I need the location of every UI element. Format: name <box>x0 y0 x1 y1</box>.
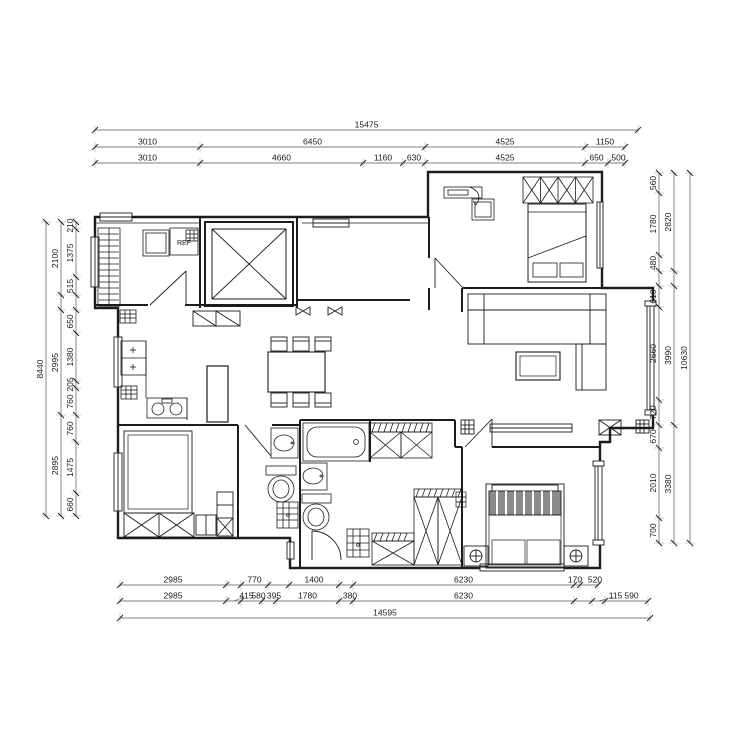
dim-chain-bottom-row1: 298577014006230170520 <box>117 575 602 591</box>
dim-label-right-inner-3: 610 <box>648 289 658 303</box>
dim-label-top-row3-1: 4660 <box>272 153 291 163</box>
bath2-fixtures <box>300 423 369 557</box>
dim-chain-bottom-total: 14595 <box>117 608 653 624</box>
dim-label-left-inner-2: 515 <box>65 279 75 293</box>
dim-label-right-inner-2: 480 <box>648 256 658 270</box>
toilet-bath1 <box>266 466 296 502</box>
washing-machine <box>143 230 169 256</box>
dim-label-left-mid-2: 2895 <box>50 456 60 475</box>
floor-vent-1 <box>296 307 310 315</box>
bed-bedroom3 <box>486 484 564 568</box>
bedroom2-furniture <box>124 431 233 537</box>
bath1-fixtures <box>266 428 298 528</box>
dim-label-left-inner-1: 1375 <box>65 243 75 262</box>
dim-label-right-inner-6: 670 <box>648 429 658 443</box>
dim-chain-left-mid: 210029952895 <box>50 219 66 519</box>
window-hall-bottom <box>287 542 294 559</box>
dim-label-right-inner-7: 2010 <box>648 473 658 492</box>
dim-label-left-total-0: 8440 <box>35 359 45 378</box>
dresser-bedroom1 <box>472 199 494 220</box>
dim-label-left-inner-8: 1475 <box>65 458 75 477</box>
dim-label-bottom-row1-0: 2985 <box>164 575 183 585</box>
outer-walls <box>95 172 653 568</box>
window-bedroom1-right <box>597 202 603 268</box>
dim-chain-top-total: 15475 <box>92 120 641 136</box>
dim-label-left-inner-3: 650 <box>65 314 75 328</box>
dim-label-bottom-total-0: 14595 <box>373 608 397 618</box>
cabinet-bedroom2 <box>196 515 216 535</box>
dim-label-top-row3-0: 3010 <box>138 153 157 163</box>
dim-label-left-inner-0: 210 <box>65 218 75 232</box>
dim-label-top-row2-0: 3010 <box>138 137 157 147</box>
closet-right-rail <box>414 489 462 497</box>
dim-label-right-inner-8: 700 <box>648 523 658 537</box>
vanity-bath2 <box>300 463 327 490</box>
dim-label-right-mid-0: 2820 <box>663 212 673 231</box>
dim-label-top-row3-4: 4525 <box>496 153 515 163</box>
door-entry-hall <box>150 271 186 305</box>
dim-label-right-mid-1: 3990 <box>663 346 673 365</box>
kitchen-drain-hatch <box>121 386 137 399</box>
closet-bottom-cell <box>372 541 414 565</box>
shower-bath1 <box>277 502 298 528</box>
entry-room-furniture: REF <box>98 228 198 306</box>
wardrobe-bedroom1 <box>523 177 593 203</box>
nightstand-right <box>564 546 588 566</box>
dim-chain-right-inner: 560178048061026607206702010700 <box>648 170 664 546</box>
closet-wardrobes <box>370 423 462 565</box>
window-hall-top <box>313 219 349 227</box>
dim-label-top-row3-2: 1160 <box>374 153 393 163</box>
dim-label-bottom-row1-3: 6230 <box>454 575 473 585</box>
dim-label-right-inner-0: 560 <box>648 176 658 190</box>
stove <box>147 398 187 418</box>
kitchen-sink <box>121 341 146 375</box>
door-bath1 <box>245 425 271 456</box>
dim-label-left-mid-1: 2995 <box>50 353 60 372</box>
dim-label-top-row3-3: 630 <box>407 153 421 163</box>
hall-cabinet <box>193 311 240 326</box>
dim-chain-right-mid: 282039903380 <box>663 170 679 546</box>
dim-label-left-inner-9: 660 <box>65 497 75 511</box>
coffee-table <box>516 352 560 380</box>
dim-chain-left-total: 8440 <box>35 219 51 519</box>
dim-label-left-mid-0: 2100 <box>50 249 60 268</box>
kitchen-column <box>207 366 228 422</box>
kitchen-hatch-top <box>120 310 136 323</box>
window-bedroom3-right <box>593 461 604 545</box>
dimension-annotations: 1547530106450452511503010466011606304525… <box>35 120 695 624</box>
dim-label-top-row3-6: 500 <box>611 153 625 163</box>
dim-label-right-inner-1: 1780 <box>648 214 658 233</box>
dim-label-bottom-row2-8: 590 <box>624 591 638 601</box>
bedroom3-furniture <box>456 484 588 568</box>
window-left-bedroom <box>114 453 122 511</box>
sofa <box>468 294 606 390</box>
window-living-bottom <box>490 424 572 432</box>
dim-chain-right-total: 10630 <box>679 170 695 546</box>
kitchen-furniture <box>120 310 228 422</box>
dim-label-top-row3-5: 650 <box>589 153 603 163</box>
window-top-left <box>100 213 132 221</box>
bed-bedroom2 <box>124 431 192 513</box>
dim-label-left-inner-6: 760 <box>65 394 75 408</box>
dim-label-top-total-0: 15475 <box>355 120 379 130</box>
dim-label-bottom-row1-2: 1400 <box>305 575 324 585</box>
nightstand-left <box>464 546 488 566</box>
dim-label-bottom-row2-4: 1780 <box>298 591 317 601</box>
vanity-bath1 <box>271 428 298 458</box>
dim-label-bottom-row1-5: 520 <box>588 575 602 585</box>
dining-table <box>268 352 325 392</box>
dim-chain-bottom-row2: 298541558039517803806230115590 <box>117 591 651 607</box>
dim-label-left-inner-4: 1380 <box>65 347 75 366</box>
dim-chain-left-inner: 210137551565013802057607601475660 <box>65 218 81 519</box>
closet-top-rail <box>370 423 432 432</box>
dim-label-bottom-row2-7: 115 <box>609 591 623 601</box>
dim-label-bottom-row1-1: 770 <box>247 575 261 585</box>
wardrobe-bedroom2 <box>124 513 194 537</box>
dim-label-bottom-row2-6: 6230 <box>454 591 473 601</box>
dim-chain-top-row2: 3010645045251150 <box>92 137 628 153</box>
bathtub <box>303 423 369 461</box>
dim-label-right-inner-5: 720 <box>648 405 658 419</box>
closet-right-cells <box>414 497 462 565</box>
dim-label-top-row2-1: 6450 <box>303 137 322 147</box>
dim-label-left-inner-7: 760 <box>65 421 75 435</box>
dim-label-bottom-row1-4: 170 <box>568 575 582 585</box>
shoe-shelf <box>98 228 120 306</box>
windows <box>91 202 656 571</box>
dim-label-top-row2-2: 4525 <box>496 137 515 147</box>
dining-chairs <box>271 337 331 407</box>
floor-plan-canvas: REF <box>0 0 740 740</box>
dim-label-left-inner-5: 205 <box>65 377 75 391</box>
door-bedroom1 <box>435 258 463 288</box>
dim-label-bottom-row2-5: 380 <box>343 591 357 601</box>
door-bath2 <box>312 531 341 560</box>
closet-top-cells <box>370 432 432 458</box>
dim-label-bottom-row2-2: 580 <box>251 591 265 601</box>
living-furniture <box>461 294 649 435</box>
shelf-column <box>217 492 233 536</box>
dim-label-right-mid-2: 3380 <box>663 474 673 493</box>
bed-bedroom1 <box>528 204 586 282</box>
dim-label-bottom-row2-0: 2985 <box>164 591 183 601</box>
dim-label-bottom-row2-3: 395 <box>267 591 281 601</box>
floor-vent-2 <box>328 307 342 315</box>
dim-label-right-total-0: 10630 <box>679 346 689 370</box>
stair-shaft <box>205 222 293 306</box>
radiator-hatch-left <box>461 420 474 434</box>
dining-furniture <box>193 307 342 407</box>
floorplan-page: REF <box>0 0 740 740</box>
dim-label-top-row2-3: 1150 <box>596 137 615 147</box>
shower-bath2 <box>347 529 369 557</box>
dim-label-right-inner-4: 2660 <box>648 344 658 363</box>
closet-bottom-rail <box>372 533 414 541</box>
toilet-bath2 <box>302 494 331 530</box>
bedroom1-furniture <box>444 177 593 282</box>
dim-chain-top-row3: 3010466011606304525650500 <box>92 153 628 169</box>
